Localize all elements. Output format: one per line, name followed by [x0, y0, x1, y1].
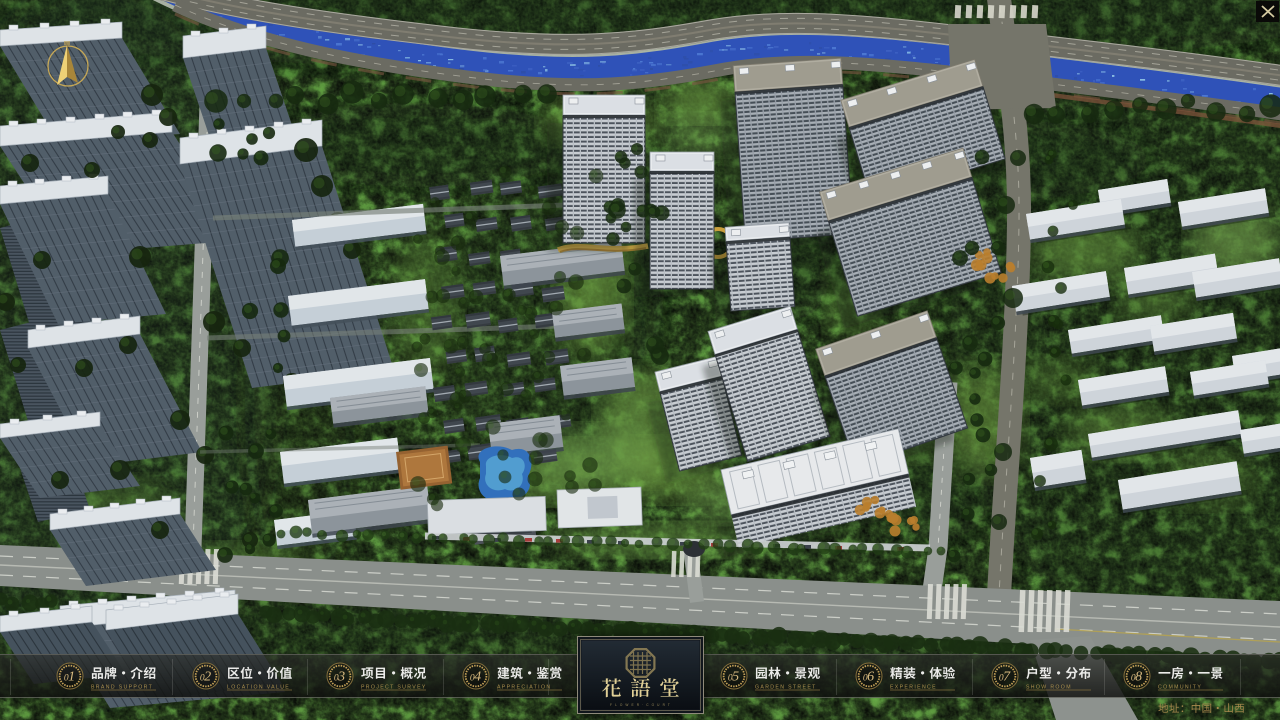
svg-text:F L O W E R · C O U R T: F L O W E R · C O U R T [610, 703, 671, 707]
